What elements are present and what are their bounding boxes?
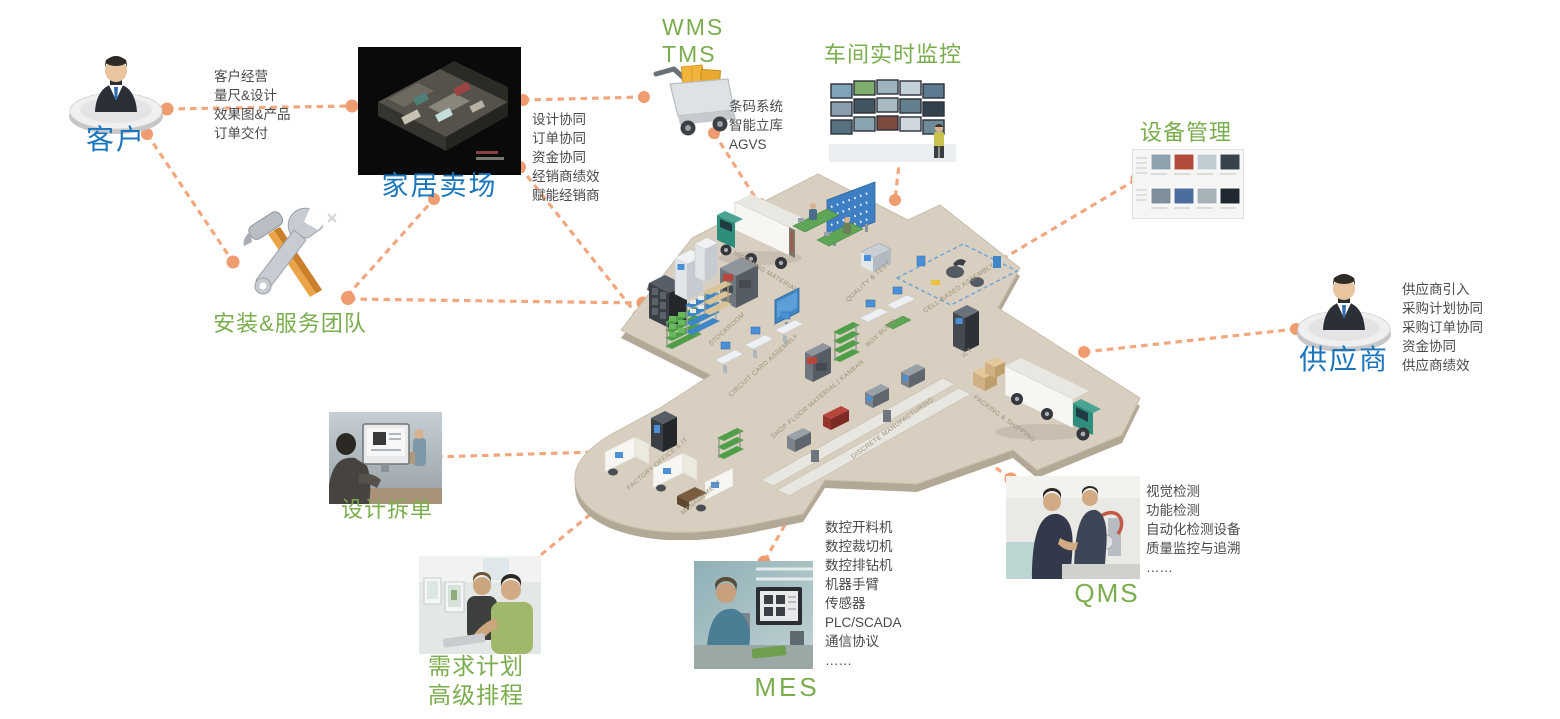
qms-scene <box>1006 476 1140 579</box>
wms-tms-details: 条码系统 智能立库 AGVS <box>729 97 783 154</box>
qms-details: 视觉检测 功能检测 自动化检测设备 质量监控与追溯 …… <box>1146 482 1241 577</box>
customer-avatar-icon <box>66 48 166 136</box>
equipment-mgmt-label: 设备管理 <box>1140 120 1232 145</box>
design-split-photo <box>329 412 442 504</box>
home-store-details: 设计协同 订单协同 资金协同 经销商绩效 赋能经销商 <box>532 110 600 205</box>
monitor-wall <box>827 72 958 164</box>
home-store-photo <box>358 47 521 175</box>
home-store-render <box>358 47 521 175</box>
ecosystem-diagram: { "colors": { "connector_line": "#F2A77F… <box>0 0 1560 719</box>
qms-photo <box>1006 476 1140 579</box>
customer-label: 客户 <box>70 124 162 156</box>
ict-cabinet <box>953 305 979 352</box>
tools-icon <box>232 202 340 310</box>
home-store-label: 家居卖场 <box>358 171 521 202</box>
mes-scene <box>694 561 813 669</box>
supplier-details: 供应商引入 采购计划协同 采购订单协同 资金协同 供应商绩效 <box>1402 280 1483 375</box>
design-split-label: 设计拆单 <box>332 497 442 522</box>
customer-details: 客户经营 量尺&设计 效果图&产品 订单交付 <box>214 67 291 143</box>
demand-planning-photo <box>419 556 541 654</box>
equipment-grid <box>1133 150 1243 218</box>
qms-label: QMS <box>1057 579 1157 609</box>
install-team-label: 安装&服务团队 <box>200 311 380 336</box>
supplier-label: 供应商 <box>1294 344 1394 376</box>
monitor-wall-photo <box>827 72 958 164</box>
mes-photo <box>694 561 813 669</box>
demand-planning-label: 需求计划 高级排程 <box>428 652 524 710</box>
workshop-monitoring-label: 车间实时监控 <box>824 42 962 67</box>
supplier-avatar-icon <box>1294 266 1394 354</box>
demand-planning-scene <box>419 556 541 654</box>
design-split-scene <box>329 412 442 504</box>
mes-details: 数控开料机 数控裁切机 数控排钻机 机器手臂 传感器 PLC/SCADA 通信协… <box>825 518 902 670</box>
mes-label: MES <box>742 673 832 703</box>
equipment-grid-photo <box>1132 149 1244 219</box>
